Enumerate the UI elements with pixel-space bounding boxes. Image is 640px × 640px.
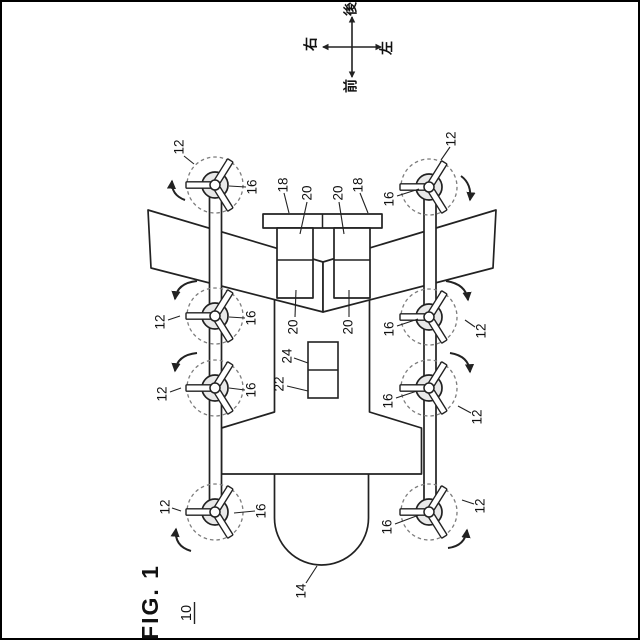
ref-20-top-right: 20: [331, 185, 346, 200]
ref-16-mid2-left: 16: [244, 382, 259, 397]
rotation-arrow-mid1-right: [446, 281, 468, 300]
ref-12-mid2-left: 12: [155, 386, 170, 401]
rotation-arrow-mid2-right: [450, 353, 470, 372]
ref-24: 24: [280, 348, 295, 364]
ref-16-mid2-right: 16: [381, 393, 396, 408]
fuselage-nose: [275, 474, 369, 565]
ref-18-left: 18: [276, 177, 291, 192]
ref-22: 22: [272, 376, 287, 391]
rotation-arrow-top-left: [172, 181, 185, 200]
equipment-box: [308, 342, 338, 398]
ref-12-mid1-right: 12: [474, 323, 489, 338]
left-rotor-boom: [210, 185, 222, 512]
patent-figure-page: 後 前 右 左: [0, 0, 640, 640]
figure-canvas: 後 前 右 左: [0, 0, 640, 640]
ref-16-bottom-left: 16: [254, 503, 269, 518]
left-tail-support: [277, 228, 313, 298]
figure-title: FIG. 1: [137, 564, 163, 640]
figure-overall-ref: 10: [179, 605, 195, 621]
figure-caption: FIG. 1 10: [137, 564, 195, 640]
rotation-arrow-top-right: [461, 176, 470, 200]
ref-12-mid1-left: 12: [153, 314, 168, 329]
ref-18-right: 18: [351, 177, 366, 192]
rotation-arrow-mid1-left: [175, 281, 197, 299]
ref-20-bottom-left: 20: [286, 319, 301, 334]
right-rotor-boom: [424, 186, 436, 512]
right-tail-support: [334, 228, 370, 298]
ref-12-bottom-right: 12: [473, 498, 488, 513]
ref-16-top-right: 16: [382, 191, 397, 206]
compass-left-label: 左: [379, 41, 395, 56]
compass-rear-label: 後: [343, 1, 359, 16]
ref-16-top-left: 16: [245, 179, 260, 194]
aircraft-top-view: 12 12 12 12 12 12 12 12 16 16 16 16 16 1…: [148, 131, 496, 598]
compass-front-label: 前: [343, 79, 359, 93]
ref-20-top-left: 20: [300, 185, 315, 200]
orientation-compass: 後 前 右 左: [303, 1, 395, 93]
ref-12-top-left: 12: [172, 139, 187, 154]
rotation-arrow-mid2-left: [175, 353, 197, 371]
compass-right-label: 右: [303, 37, 319, 52]
ref-12-bottom-left: 12: [158, 499, 173, 514]
ref-16-bottom-right: 16: [380, 519, 395, 534]
ref-16-mid1-left: 16: [244, 310, 259, 325]
rotation-arrow-bottom-left: [176, 529, 191, 551]
ref-12-mid2-right: 12: [470, 409, 485, 424]
rotation-arrow-bottom-right: [448, 530, 467, 548]
ref-16-mid1-right: 16: [382, 321, 397, 336]
ref-14: 14: [294, 583, 309, 599]
ref-20-bottom-right: 20: [341, 319, 356, 334]
ref-12-top-right: 12: [444, 131, 459, 146]
